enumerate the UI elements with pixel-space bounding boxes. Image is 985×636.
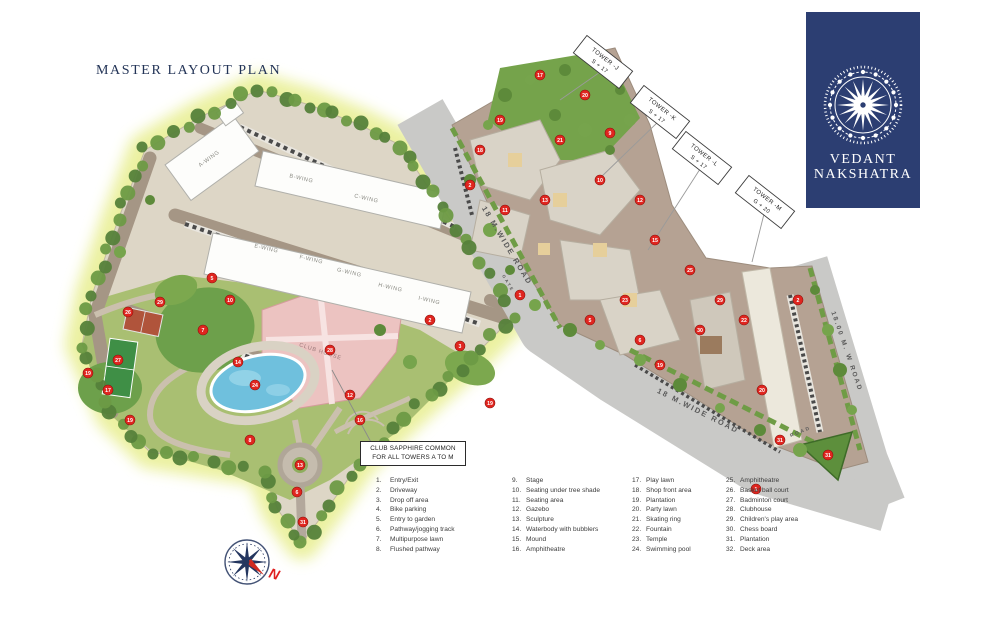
plan-marker: 5: [207, 273, 217, 283]
plan-marker: 24: [250, 380, 260, 390]
legend-item-label: Sculpture: [526, 515, 554, 525]
tree-icon: [462, 240, 477, 255]
tree-icon: [754, 424, 766, 436]
svg-text:10: 10: [597, 178, 603, 184]
tree-icon: [99, 396, 112, 409]
legend-item: 4.Bike parking: [376, 505, 494, 515]
legend-item: 30.Chess board: [726, 525, 830, 535]
tree-icon: [114, 214, 127, 227]
tree-icon: [605, 145, 615, 155]
legend-item-number: 3.: [376, 496, 390, 506]
plan-marker: 20: [580, 90, 590, 100]
legend-item-number: 22.: [632, 525, 646, 535]
plan-marker: 27: [113, 355, 123, 365]
svg-text:28: 28: [327, 348, 333, 354]
legend-item: 16.Amphitheatre: [512, 545, 614, 555]
tree-icon: [266, 492, 277, 503]
tree-icon: [305, 103, 316, 114]
tree-icon: [208, 456, 221, 469]
plan-marker: 2: [465, 180, 475, 190]
tree-icon: [483, 120, 493, 130]
tree-icon: [379, 132, 390, 143]
svg-text:5: 5: [211, 276, 214, 282]
legend-item: 23.Temple: [632, 535, 708, 545]
cluster-courtyard: [700, 336, 722, 354]
tree-icon: [221, 460, 236, 475]
plan-marker: 2: [425, 315, 435, 325]
tree-icon: [426, 389, 439, 402]
plan-marker: 28: [325, 345, 335, 355]
tree-icon: [673, 378, 687, 392]
svg-text:7: 7: [202, 328, 205, 334]
svg-text:9: 9: [609, 131, 612, 137]
svg-text:3: 3: [459, 344, 462, 350]
legend-item-label: Entry to garden: [390, 515, 435, 525]
legend-item: 3.Drop off area: [376, 496, 494, 506]
brand-name-line2: NAKSHATRA: [814, 167, 912, 182]
legend-item-number: 23.: [632, 535, 646, 545]
brand-name-line1: VEDANT: [830, 152, 897, 167]
tree-icon: [323, 500, 336, 513]
legend-column-2: 9.Stage10.Seating under tree shade11.Sea…: [512, 476, 614, 554]
tree-icon: [549, 109, 561, 121]
tree-icon: [208, 107, 221, 120]
tree-icon: [483, 328, 496, 341]
tree-icon: [529, 299, 541, 311]
legend-item: 21.Skating ring: [632, 515, 708, 525]
legend-item-label: Deck area: [740, 545, 770, 555]
tower-label: TOWER -LS + 17: [672, 131, 731, 184]
tree-icon: [374, 324, 386, 336]
tree-icon: [427, 185, 440, 198]
svg-text:13: 13: [542, 198, 548, 204]
tree-icon: [464, 351, 479, 366]
legend-item-label: Children's play area: [740, 515, 798, 525]
tree-icon: [624, 114, 636, 126]
legend-item: 10.Seating under tree shade: [512, 486, 614, 496]
svg-text:10: 10: [227, 298, 233, 304]
legend-item-number: 27.: [726, 496, 740, 506]
legend-column-3: 17.Play lawn18.Shop front area19.Plantat…: [632, 476, 708, 554]
legend-item-label: Amphitheatre: [526, 545, 565, 555]
tree-icon: [226, 98, 237, 109]
svg-text:18: 18: [477, 148, 483, 154]
svg-text:6: 6: [296, 490, 299, 496]
tree-icon: [409, 398, 420, 409]
svg-text:29: 29: [717, 298, 723, 304]
plan-marker: 25: [685, 265, 695, 275]
tree-icon: [129, 170, 142, 183]
legend-item-label: Drop off area: [390, 496, 428, 506]
tree-icon: [137, 142, 148, 153]
plan-marker: 7: [198, 325, 208, 335]
legend-item-label: Mound: [526, 535, 546, 545]
tree-icon: [559, 64, 571, 76]
tree-icon: [100, 244, 111, 255]
legend-item: 20.Party lawn: [632, 505, 708, 515]
callout-line2: FOR ALL TOWERS A TO M: [363, 454, 463, 463]
legend-item-number: 29.: [726, 515, 740, 525]
tree-icon: [150, 135, 165, 150]
tree-icon: [191, 109, 206, 124]
svg-text:30: 30: [697, 328, 703, 334]
legend-item-label: Waterbody with bubblers: [526, 525, 598, 535]
page-title: MASTER LAYOUT PLAN: [96, 63, 281, 79]
tree-icon: [595, 340, 605, 350]
tree-icon: [77, 343, 88, 354]
pool-highlight: [266, 384, 290, 396]
svg-text:20: 20: [582, 93, 588, 99]
tree-icon: [847, 405, 857, 415]
legend-item-number: 25.: [726, 476, 740, 486]
legend-item-label: Multipurpose lawn: [390, 535, 443, 545]
legend-item-number: 6.: [376, 525, 390, 535]
legend: 1.Entry/Exit2.Driveway3.Drop off area4.B…: [376, 476, 848, 554]
legend-item-number: 14.: [512, 525, 526, 535]
tree-icon: [347, 471, 358, 482]
compass-north-letter: N: [267, 565, 282, 584]
plan-marker: 19: [495, 115, 505, 125]
legend-item-label: Play lawn: [646, 476, 674, 486]
tree-icon: [498, 88, 512, 102]
legend-item: 29.Children's play area: [726, 515, 830, 525]
tree-icon: [188, 451, 199, 462]
legend-item: 5.Entry to garden: [376, 515, 494, 525]
plan-marker: 18: [475, 145, 485, 155]
plan-marker: 21: [555, 135, 565, 145]
legend-item-label: Temple: [646, 535, 667, 545]
legend-item-label: Fountain: [646, 525, 672, 535]
plan-marker: 17: [535, 70, 545, 80]
tree-icon: [810, 285, 820, 295]
legend-column-4: 25.Amphitheatre26.Basket ball court27.Ba…: [726, 476, 830, 554]
plan-marker: 31: [823, 450, 833, 460]
legend-item: 9.Stage: [512, 476, 614, 486]
svg-text:31: 31: [777, 438, 783, 444]
legend-item: 27.Badminton court: [726, 496, 830, 506]
logo-emblem-icon: [820, 62, 906, 148]
tree-icon: [160, 446, 173, 459]
plan-marker: 2: [793, 295, 803, 305]
svg-text:21: 21: [557, 138, 563, 144]
legend-item-label: Pathway/jogging track: [390, 525, 455, 535]
svg-text:1: 1: [519, 293, 522, 299]
svg-text:19: 19: [657, 363, 663, 369]
svg-text:31: 31: [300, 520, 306, 526]
legend-item: 32.Deck area: [726, 545, 830, 555]
compass-rose: [225, 540, 269, 584]
legend-item: 6.Pathway/jogging track: [376, 525, 494, 535]
plan-marker: 6: [292, 487, 302, 497]
tree-icon: [145, 195, 155, 205]
svg-text:22: 22: [741, 318, 747, 324]
legend-item-number: 17.: [632, 476, 646, 486]
legend-item-label: Seating area: [526, 496, 563, 506]
tree-icon: [167, 125, 180, 138]
tree-icon: [387, 422, 400, 435]
tree-icon: [822, 324, 834, 336]
legend-item-number: 24.: [632, 545, 646, 555]
svg-text:29: 29: [157, 300, 163, 306]
svg-text:26: 26: [125, 310, 131, 316]
plan-marker: 10: [225, 295, 235, 305]
tree-icon: [105, 231, 120, 246]
legend-item-number: 19.: [632, 496, 646, 506]
legend-item-number: 4.: [376, 505, 390, 515]
legend-item: 18.Shop front area: [632, 486, 708, 496]
legend-item-number: 31.: [726, 535, 740, 545]
plan-marker: 13: [295, 460, 305, 470]
legend-item-label: Stage: [526, 476, 543, 486]
plan-marker: 14: [233, 357, 243, 367]
tree-icon: [125, 430, 138, 443]
plan-marker: 11: [500, 205, 510, 215]
tree-icon: [307, 525, 322, 540]
tree-icon: [137, 161, 148, 172]
tower-leader-line: [752, 210, 765, 262]
svg-text:11: 11: [502, 208, 508, 214]
tree-icon: [330, 480, 345, 495]
club-sapphire-callout: CLUB SAPPHIRE COMMON FOR ALL TOWERS A TO…: [360, 441, 466, 466]
legend-item-number: 8.: [376, 545, 390, 555]
tree-icon: [80, 321, 95, 336]
plan-marker: 15: [650, 235, 660, 245]
plan-marker: 30: [695, 325, 705, 335]
tree-icon: [148, 449, 159, 460]
tree-icon: [715, 403, 725, 413]
tree-icon: [173, 451, 188, 466]
legend-item-number: 13.: [512, 515, 526, 525]
tree-icon: [473, 257, 486, 270]
tree-icon: [525, 75, 535, 85]
plan-marker: 19: [125, 415, 135, 425]
svg-text:31: 31: [825, 453, 831, 459]
legend-item: 31.Plantation: [726, 535, 830, 545]
plan-marker: 5: [585, 315, 595, 325]
svg-text:15: 15: [652, 238, 658, 244]
plan-marker: 3: [455, 341, 465, 351]
tree-icon: [120, 186, 135, 201]
tree-icon: [484, 268, 495, 279]
svg-text:14: 14: [235, 360, 241, 366]
legend-item: 1.Entry/Exit: [376, 476, 494, 486]
legend-item-label: Amphitheatre: [740, 476, 779, 486]
legend-item-label: Clubhouse: [740, 505, 772, 515]
tree-icon: [289, 530, 300, 541]
tree-icon: [457, 364, 470, 377]
legend-item: 2.Driveway: [376, 486, 494, 496]
tree-icon: [450, 224, 463, 237]
tree-icon: [86, 291, 97, 302]
legend-item-label: Entry/Exit: [390, 476, 418, 486]
legend-item-number: 30.: [726, 525, 740, 535]
legend-item-number: 32.: [726, 545, 740, 555]
tree-icon: [289, 94, 302, 107]
legend-column-1: 1.Entry/Exit2.Driveway3.Drop off area4.B…: [376, 476, 494, 554]
plan-marker: 22: [739, 315, 749, 325]
tree-icon: [498, 319, 513, 334]
legend-item: 15.Mound: [512, 535, 614, 545]
legend-item: 14.Waterbody with bubblers: [512, 525, 614, 535]
legend-item-label: Flushed pathway: [390, 545, 440, 555]
plan-marker: 23: [620, 295, 630, 305]
svg-text:6: 6: [639, 338, 642, 344]
callout-line1: CLUB SAPPHIRE COMMON: [363, 445, 463, 454]
tree-icon: [281, 514, 296, 529]
legend-item-number: 11.: [512, 496, 526, 506]
svg-text:27: 27: [115, 358, 121, 364]
tree-icon: [634, 354, 646, 366]
legend-item-number: 20.: [632, 505, 646, 515]
plan-marker: 26: [123, 307, 133, 317]
legend-item: 22.Fountain: [632, 525, 708, 535]
legend-item-label: Shop front area: [646, 486, 691, 496]
svg-text:24: 24: [252, 383, 258, 389]
svg-text:2: 2: [469, 183, 472, 189]
svg-text:17: 17: [105, 388, 111, 394]
tree-icon: [793, 443, 807, 457]
tree-icon: [833, 363, 847, 377]
tree-icon: [439, 208, 454, 223]
plan-marker: 31: [298, 517, 308, 527]
svg-text:19: 19: [487, 401, 493, 407]
tree-icon: [251, 85, 264, 98]
tree-icon: [578, 123, 592, 137]
tree-icon: [563, 323, 577, 337]
legend-item: 28.Clubhouse: [726, 505, 830, 515]
legend-item: 25.Amphitheatre: [726, 476, 830, 486]
tree-icon: [79, 302, 92, 315]
legend-item: 24.Swimming pool: [632, 545, 708, 555]
svg-text:13: 13: [297, 463, 303, 469]
plan-marker: 16: [355, 415, 365, 425]
tree-icon: [238, 461, 249, 472]
svg-text:20: 20: [759, 388, 765, 394]
legend-item-number: 21.: [632, 515, 646, 525]
svg-text:2: 2: [797, 298, 800, 304]
svg-text:16: 16: [357, 418, 363, 424]
legend-item: 7.Multipurpose lawn: [376, 535, 494, 545]
svg-text:17: 17: [537, 73, 543, 79]
legend-item: 26.Basket ball court: [726, 486, 830, 496]
legend-item-label: Party lawn: [646, 505, 677, 515]
tower-label: TOWER -MG + 20: [735, 175, 794, 228]
legend-item-label: Bike parking: [390, 505, 426, 515]
svg-text:12: 12: [637, 198, 643, 204]
svg-text:19: 19: [497, 118, 503, 124]
plan-marker: 31: [775, 435, 785, 445]
legend-item: 8.Flushed pathway: [376, 545, 494, 555]
plan-marker: 20: [757, 385, 767, 395]
legend-item-label: Driveway: [390, 486, 417, 496]
tree-icon: [267, 86, 278, 97]
tree-icon: [233, 86, 248, 101]
tree-icon: [184, 122, 195, 133]
tree-icon: [341, 116, 352, 127]
svg-text:23: 23: [622, 298, 628, 304]
tree-icon: [114, 246, 126, 258]
plan-marker: 12: [345, 390, 355, 400]
plan-marker: 8: [245, 435, 255, 445]
svg-text:5: 5: [589, 318, 592, 324]
plan-marker: 10: [595, 175, 605, 185]
legend-item-number: 1.: [376, 476, 390, 486]
brand-logo: VEDANT NAKSHATRA: [806, 12, 920, 208]
plan-marker: 17: [103, 385, 113, 395]
tree-icon: [354, 116, 369, 131]
plan-marker: 29: [155, 297, 165, 307]
legend-item-label: Plantation: [646, 496, 675, 506]
legend-item-label: Gazebo: [526, 505, 549, 515]
svg-text:19: 19: [127, 418, 133, 424]
plan-marker: 9: [605, 128, 615, 138]
legend-item-number: 12.: [512, 505, 526, 515]
tree-icon: [403, 355, 417, 369]
plan-marker: 6: [635, 335, 645, 345]
legend-item-label: Swimming pool: [646, 545, 691, 555]
tree-icon: [259, 466, 272, 479]
legend-item-label: Plantation: [740, 535, 769, 545]
svg-text:8: 8: [249, 438, 252, 444]
tree-icon: [326, 106, 339, 119]
svg-text:19: 19: [85, 371, 91, 377]
legend-item: 11.Seating area: [512, 496, 614, 506]
svg-text:25: 25: [687, 268, 693, 274]
legend-item-number: 5.: [376, 515, 390, 525]
legend-item-label: Skating ring: [646, 515, 681, 525]
legend-item: 19.Plantation: [632, 496, 708, 506]
plan-marker: 19: [655, 360, 665, 370]
legend-item-number: 18.: [632, 486, 646, 496]
tree-icon: [498, 294, 511, 307]
legend-item-number: 10.: [512, 486, 526, 496]
legend-item-number: 2.: [376, 486, 390, 496]
legend-item: 13.Sculpture: [512, 515, 614, 525]
plan-marker: 12: [635, 195, 645, 205]
legend-item-label: Seating under tree shade: [526, 486, 600, 496]
legend-item: 17.Play lawn: [632, 476, 708, 486]
legend-item-number: 9.: [512, 476, 526, 486]
legend-item-label: Badminton court: [740, 496, 788, 506]
legend-item-label: Chess board: [740, 525, 777, 535]
tree-icon: [443, 371, 454, 382]
legend-item-number: 16.: [512, 545, 526, 555]
svg-text:2: 2: [429, 318, 432, 324]
plan-marker: 1: [515, 290, 525, 300]
svg-text:12: 12: [347, 393, 353, 399]
legend-item: 12.Gazebo: [512, 505, 614, 515]
legend-item-number: 7.: [376, 535, 390, 545]
plan-marker: 19: [83, 368, 93, 378]
plan-marker: 13: [540, 195, 550, 205]
tree-icon: [408, 161, 419, 172]
tree-icon: [99, 261, 112, 274]
legend-item-number: 15.: [512, 535, 526, 545]
plan-marker: 19: [485, 398, 495, 408]
legend-item-number: 26.: [726, 486, 740, 496]
legend-item-number: 28.: [726, 505, 740, 515]
plan-marker: 29: [715, 295, 725, 305]
tree-icon: [316, 510, 327, 521]
legend-item-label: Basket ball court: [740, 486, 789, 496]
